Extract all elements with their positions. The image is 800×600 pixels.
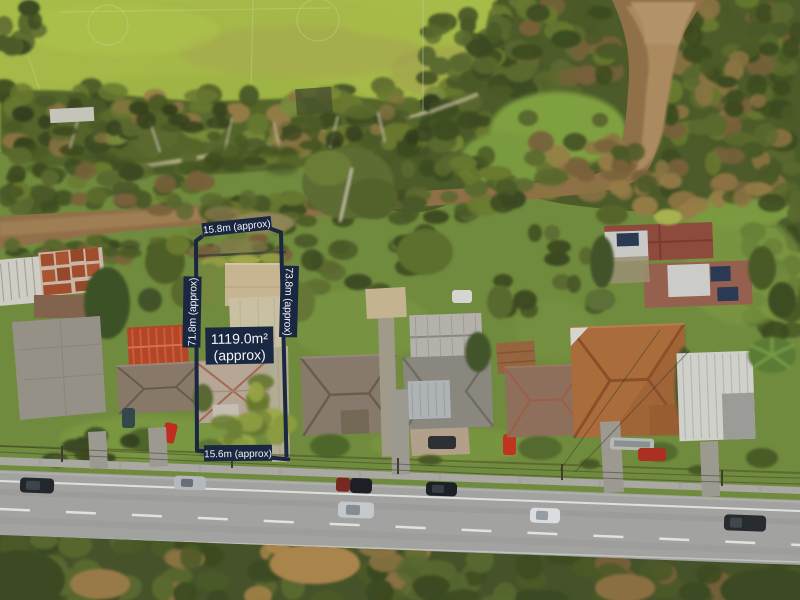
svg-text:71.8m (approx): 71.8m (approx) [186, 278, 199, 347]
svg-text:1119.0m²: 1119.0m² [211, 330, 269, 347]
svg-text:(approx): (approx) [213, 347, 265, 364]
svg-text:15.6m (approx): 15.6m (approx) [204, 449, 272, 461]
svg-text:73.8m (approx): 73.8m (approx) [281, 267, 295, 336]
